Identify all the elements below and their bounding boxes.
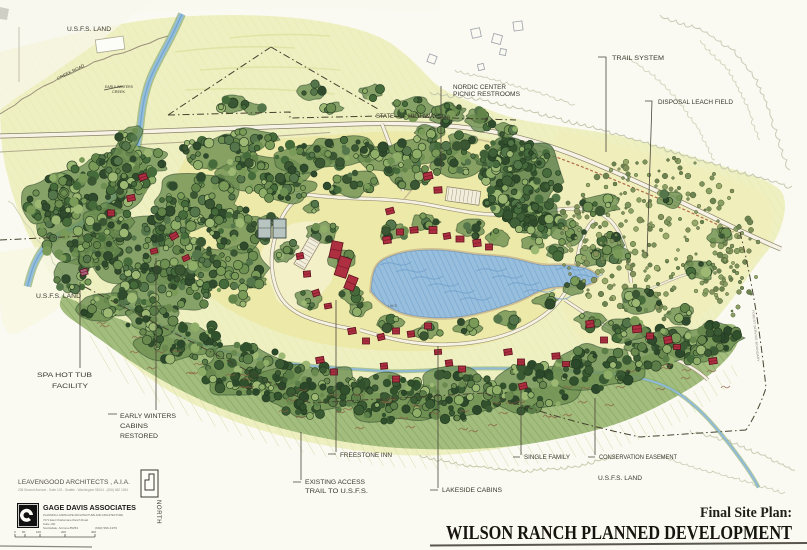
svg-text:20: 20 — [443, 115, 451, 122]
svg-text:RESTORED: RESTORED — [120, 433, 159, 440]
svg-text:DISPOSAL LEACH FIELD: DISPOSAL LEACH FIELD — [658, 99, 733, 106]
svg-text:CABINS: CABINS — [120, 423, 148, 430]
svg-text:CREEK: CREEK — [112, 89, 125, 94]
svg-text:NORTH: NORTH — [155, 500, 161, 524]
svg-text:LAKE: LAKE — [388, 304, 398, 308]
svg-text:400: 400 — [91, 530, 96, 534]
svg-text:U.S.F.S. LAND: U.S.F.S. LAND — [67, 26, 111, 33]
svg-text:U.S.F.S. LAND: U.S.F.S. LAND — [36, 293, 82, 300]
svg-text:WILSON RANCH PLANNED DEVELOPME: WILSON RANCH PLANNED DEVELOPMENT — [446, 522, 793, 544]
svg-text:50: 50 — [22, 530, 26, 534]
svg-text:FACILITY: FACILITY — [52, 383, 88, 390]
svg-text:SPA HOT TUB: SPA HOT TUB — [37, 372, 92, 379]
svg-text:EXISTING ACCESS: EXISTING ACCESS — [305, 479, 365, 486]
svg-text:CONSERVATION EASEMENT: CONSERVATION EASEMENT — [599, 454, 677, 461]
svg-text:LAKESIDE CABINS: LAKESIDE CABINS — [442, 487, 502, 494]
svg-text:U.S.F.S. LAND: U.S.F.S. LAND — [598, 475, 643, 482]
svg-text:EARLY WINTERS: EARLY WINTERS — [120, 413, 176, 420]
svg-text:208 Second Avenue - Suite 102: 208 Second Avenue - Suite 102 - Seattle … — [18, 488, 128, 492]
svg-text:STATE: STATE — [376, 113, 394, 120]
svg-text:100: 100 — [36, 530, 41, 534]
svg-text:200: 200 — [61, 530, 66, 534]
svg-text:PICNIC RESTROOMS: PICNIC RESTROOMS — [453, 91, 520, 98]
svg-text:HIGHWAY: HIGHWAY — [408, 113, 438, 120]
svg-text:(602) 596-1976: (602) 596-1976 — [95, 526, 117, 530]
svg-text:NORDIC CENTER: NORDIC CENTER — [453, 84, 507, 91]
svg-text:TRAIL SYSTEM: TRAIL SYSTEM — [612, 55, 664, 62]
svg-text:SINGLE FAMILY: SINGLE FAMILY — [524, 454, 570, 461]
svg-text:GAGE DAVIS ASSOCIATES: GAGE DAVIS ASSOCIATES — [43, 503, 136, 512]
svg-text:Final Site Plan:: Final Site Plan: — [700, 505, 792, 521]
svg-text:TRAIL TO U.S.F.S.: TRAIL TO U.S.F.S. — [305, 488, 368, 495]
svg-text:FREESTONE INN: FREESTONE INN — [340, 452, 392, 459]
svg-text:PLANNING LANDSCAPE ARCHITECTUR: PLANNING LANDSCAPE ARCHITECTURE AND ARCH… — [43, 513, 123, 517]
svg-text:LEAVENGOOD ARCHITECTS , A.I.A.: LEAVENGOOD ARCHITECTS , A.I.A. — [18, 479, 130, 486]
